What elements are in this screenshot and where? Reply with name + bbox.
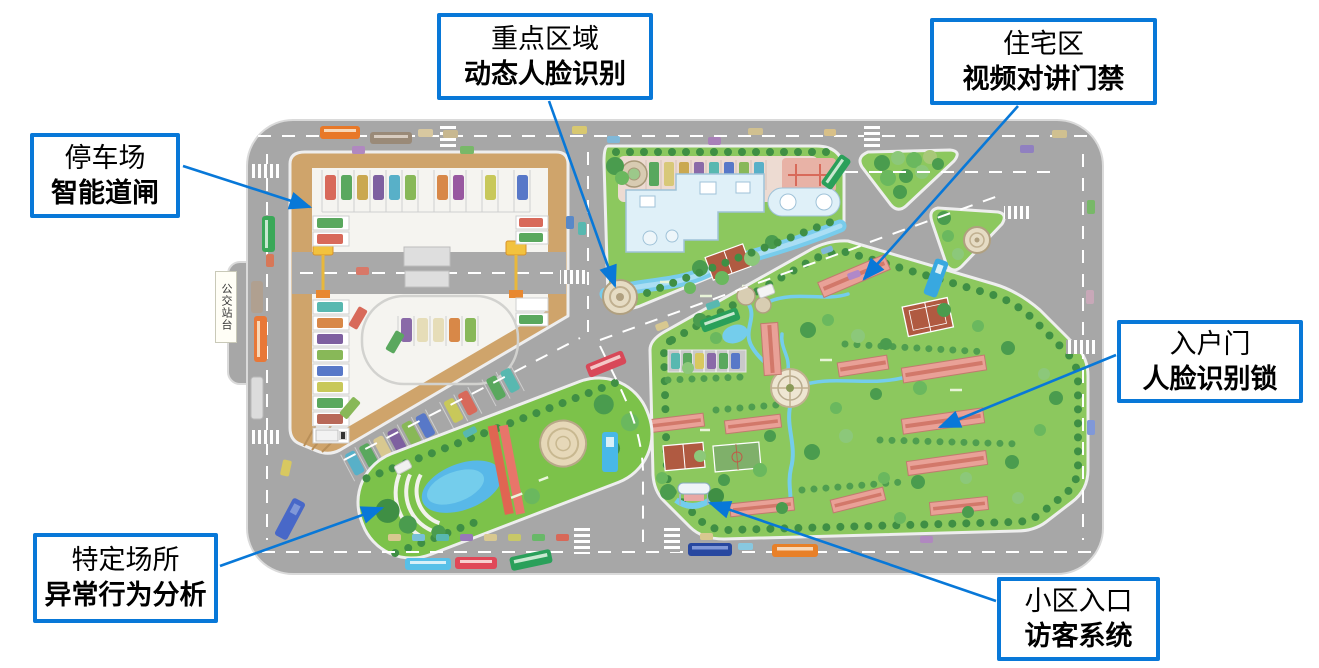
callout-community-entrance-feature: 访客系统 <box>1025 619 1133 654</box>
callout-residential-title: 住宅区 <box>1003 27 1084 62</box>
callout-special-site-title: 特定场所 <box>72 543 180 578</box>
central-plaza <box>603 280 637 314</box>
screenshot-root: 公交站台 停车场 智能道闸 重点区域 动态人脸识别 住宅区 视频对讲门禁 入户门… <box>0 0 1319 668</box>
callout-entry-door-title: 入户门 <box>1170 327 1251 362</box>
callout-key-area: 重点区域 动态人脸识别 <box>437 13 653 100</box>
callout-entry-door: 入户门 人脸识别锁 <box>1117 320 1303 403</box>
callout-key-area-feature: 动态人脸识别 <box>464 57 626 92</box>
callout-residential: 住宅区 视频对讲门禁 <box>930 18 1157 105</box>
callout-residential-feature: 视频对讲门禁 <box>963 62 1125 97</box>
callout-parking: 停车场 智能道闸 <box>30 133 180 218</box>
callout-community-entrance: 小区入口 访客系统 <box>997 577 1160 661</box>
callout-community-entrance-title: 小区入口 <box>1025 584 1133 619</box>
truck <box>316 430 347 441</box>
callout-special-site: 特定场所 异常行为分析 <box>33 533 218 623</box>
callout-key-area-title: 重点区域 <box>491 22 599 57</box>
callout-special-site-feature: 异常行为分析 <box>45 578 207 613</box>
bus-stop-sign: 公交站台 <box>215 271 237 343</box>
callout-parking-title: 停车场 <box>65 141 146 176</box>
bus-stop-label: 公交站台 <box>218 283 234 331</box>
callout-entry-door-feature: 人脸识别锁 <box>1143 362 1278 397</box>
callout-parking-feature: 智能道闸 <box>51 176 159 211</box>
residential-parking-row <box>668 350 746 372</box>
